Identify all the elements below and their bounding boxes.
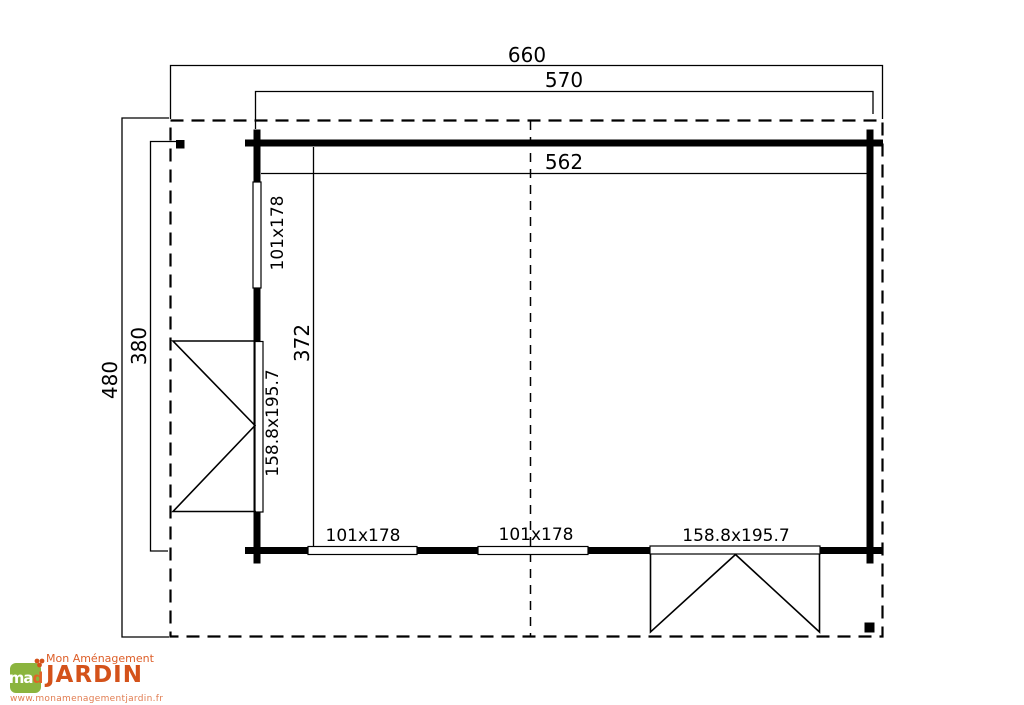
dim-380-label: 380 — [127, 327, 151, 365]
bottom-window-1 — [308, 547, 417, 555]
dim-570-label: 570 — [545, 68, 583, 92]
logo-monogram-text: ma — [9, 671, 33, 686]
left-window-label: 101x178 — [268, 196, 288, 271]
dim-660-label: 660 — [508, 43, 546, 67]
dim-480-line — [122, 118, 169, 637]
left-window — [253, 182, 261, 288]
floor-plan-page: 660 570 562 480 380 372 101x178 158.8x19… — [0, 0, 1024, 705]
logo-website: www.monamenagementjardin.fr — [10, 694, 163, 704]
clover-icon — [33, 654, 46, 673]
bottom-window-1-label: 101x178 — [326, 526, 401, 546]
wall-right — [867, 130, 874, 564]
bottom-window-2 — [478, 547, 588, 555]
dim-380-line — [151, 142, 178, 552]
openings — [253, 182, 820, 555]
bottom-door-label: 158.8x195.7 — [682, 526, 789, 546]
dim-570-line — [256, 92, 874, 130]
roof-post-bottom-right-icon — [865, 623, 875, 633]
bottom-window-2-label: 101x178 — [499, 525, 574, 545]
left-door-leaf — [255, 342, 263, 513]
dim-372-label: 372 — [290, 324, 314, 362]
wall-top — [245, 140, 883, 147]
floor-plan-drawing: 660 570 562 480 380 372 101x178 158.8x19… — [0, 0, 1024, 705]
dim-480-label: 480 — [98, 361, 122, 399]
logo-brand-name: JARDIN — [46, 664, 154, 687]
dim-562-label: 562 — [545, 150, 583, 174]
logo-wordmark: Mon Aménagement JARDIN — [46, 653, 154, 687]
bottom-door-leaf — [650, 546, 820, 554]
left-door-swing — [173, 341, 256, 512]
walls — [245, 130, 883, 564]
brand-logo: mad Mon Aménagement JARDIN www.monamenag… — [8, 650, 148, 705]
bottom-door-swing — [651, 554, 820, 632]
roof-post-top-left-icon — [176, 140, 185, 149]
dim-660-line — [171, 66, 883, 120]
left-door-label: 158.8x195.7 — [263, 369, 283, 476]
